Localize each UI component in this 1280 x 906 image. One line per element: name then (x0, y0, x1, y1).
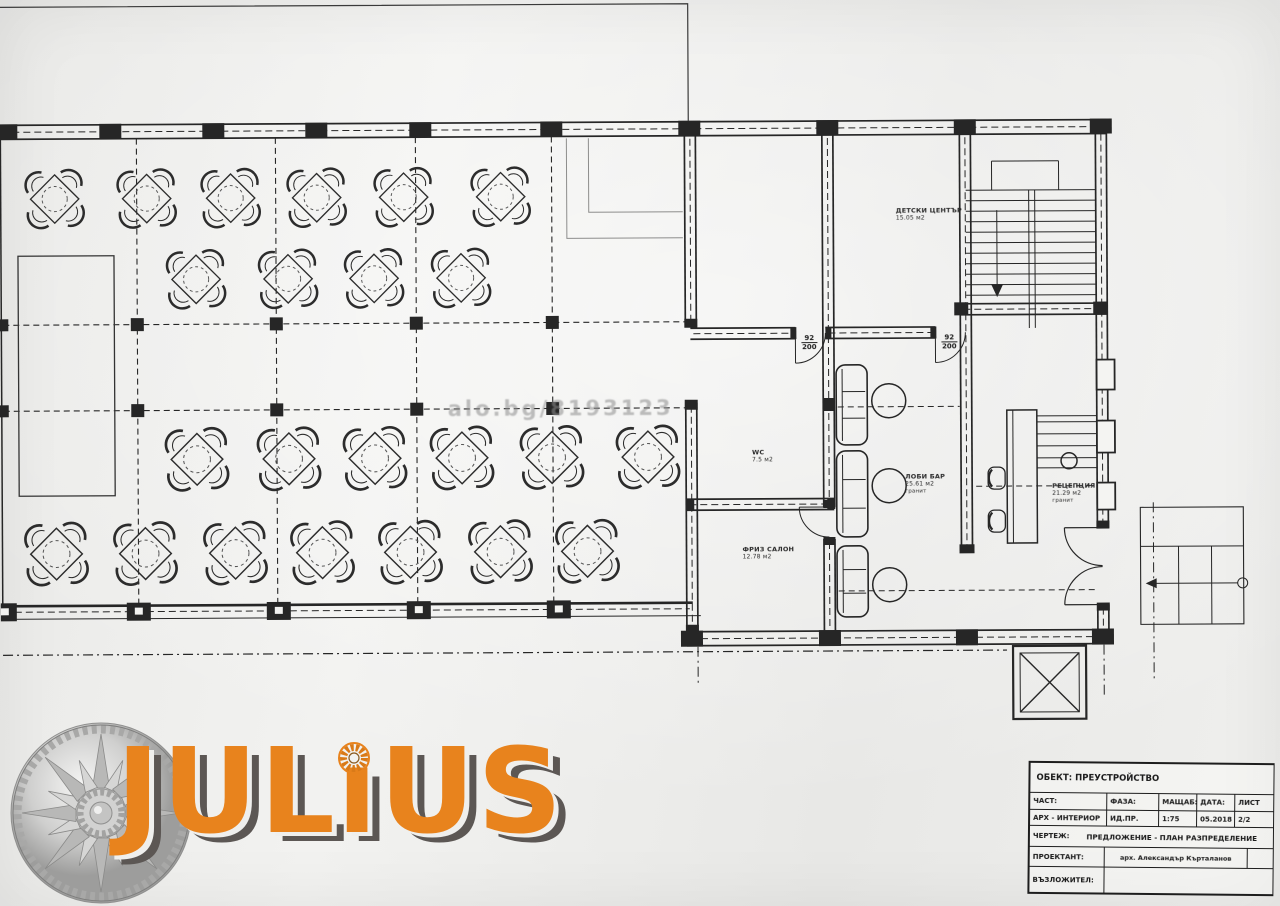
dining-table-group (556, 520, 618, 582)
julius-logo-text: JULı US (116, 732, 564, 850)
title-block: ОБЕКТ: ПРЕУСТРОЙСТВО ЧАСТ: ФАЗА: МАЩАБ: … (1027, 761, 1274, 896)
value-chast: АРХ - ИНТЕРИОР (1030, 810, 1107, 826)
room-label-kids-center: ДЕТСКИ ЦЕНТЪР 15.05 м2 (896, 206, 962, 223)
object-label: ОБЕКТ: ПРЕУСТРОЙСТВО (1036, 772, 1159, 783)
logo-letters: US (379, 732, 564, 850)
dining-table-group (432, 249, 490, 307)
room-area: 12.78 м2 (743, 554, 795, 562)
door-height: 200 (802, 343, 817, 351)
drawing-title: ПРЕДЛОЖЕНИЕ - ПЛАН РАЗПРЕДЕЛЕНИЕ (1086, 832, 1257, 843)
header-data: ДАТА: (1197, 794, 1235, 810)
header-faza: ФАЗА: (1107, 794, 1159, 810)
drawing-label: ЧЕРТЕЖ: (1030, 832, 1073, 840)
room-label-wc: WC 7.5 м2 (752, 448, 773, 464)
room-area: 25.61 м2 (905, 481, 945, 489)
dining-table-group (374, 168, 432, 226)
header-chast: ЧАСТ: (1030, 793, 1107, 810)
dining-table-group (204, 522, 266, 584)
logo-letter-i: ı (337, 732, 379, 850)
room-name: ЛОБИ БАР (905, 472, 945, 481)
scanned-floor-plan-sheet: ДЕТСКИ ЦЕНТЪР 15.05 м2 WC 7.5 м2 ФРИЗ СА… (0, 0, 1280, 906)
door-width: 92 (941, 333, 957, 342)
value-list: 2/2 (1235, 812, 1273, 827)
entrance-steps (1140, 507, 1248, 625)
titleblock-designer-row: ПРОЕКТАНТ: арх. Александър Кърталанов (1030, 846, 1273, 868)
lobby-bar-furniture (836, 365, 907, 617)
dining-table-group (291, 521, 353, 583)
dining-table-group (345, 249, 403, 307)
designer-name: арх. Александър Кърталанов (1105, 848, 1248, 868)
doors (795, 332, 1102, 607)
door-height: 200 (942, 342, 957, 350)
header-list: ЛИСТ (1235, 795, 1273, 811)
dining-table-group (25, 523, 87, 585)
room-floor-finish: гранит (1052, 498, 1095, 505)
value-mashtab: 1:75 (1159, 811, 1197, 826)
dining-table-group (259, 250, 317, 308)
value-data: 05.2018 (1197, 811, 1235, 826)
dining-table-group (344, 427, 406, 489)
dining-table-group (617, 426, 679, 488)
sun-dot-icon (334, 738, 374, 778)
value-faza: ИД.ПР. (1107, 811, 1159, 826)
dining-table-group (167, 250, 225, 308)
dining-table-group (26, 170, 84, 228)
titleblock-object-row: ОБЕКТ: ПРЕУСТРОЙСТВО (1030, 763, 1273, 794)
room-floor-finish: гранит (905, 489, 945, 496)
dining-table-group (431, 427, 493, 489)
dining-table-group (521, 426, 583, 488)
reception-desk (988, 410, 1038, 543)
door-width: 92 (801, 334, 817, 343)
client-label: ВЪЗЛОЖИТЕЛ: (1029, 867, 1104, 893)
julius-logo: JULı US (0, 710, 640, 906)
room-name: ДЕТСКИ ЦЕНТЪР (896, 206, 962, 215)
room-name: WC (752, 448, 773, 457)
room-area: 15.05 м2 (896, 215, 962, 223)
empty-cell (1248, 849, 1273, 868)
room-label-friz-salon: ФРИЗ САЛОН 12.78 м2 (742, 545, 794, 562)
room-label-reception: РЕЦЕПЦИЯ 21.29 м2 гранит (1052, 482, 1095, 506)
dining-tables (24, 167, 680, 585)
designer-label: ПРОЕКТАНТ: (1030, 847, 1105, 867)
header-mashtab: МАЩАБ: (1159, 794, 1197, 810)
elevator-shaft (1013, 646, 1086, 719)
dining-table-group (287, 169, 345, 227)
dining-table-group (258, 428, 320, 490)
dining-table-group (379, 521, 441, 583)
empty-cell (1104, 868, 1272, 895)
dining-table-group (166, 428, 228, 490)
room-area: 21.29 м2 (1052, 490, 1095, 498)
dining-table-group (118, 169, 176, 227)
room-name: РЕЦЕПЦИЯ (1052, 482, 1095, 491)
titleblock-client-row: ВЪЗЛОЖИТЕЛ: (1029, 866, 1272, 894)
dining-table-group (201, 169, 259, 227)
titleblock-drawing-row: ЧЕРТЕЖ: ПРЕДЛОЖЕНИЕ - ПЛАН РАЗПРЕДЕЛЕНИЕ (1030, 825, 1273, 848)
site-watermark: alo.bg/8193123 (448, 396, 674, 421)
logo-letters: JUL (116, 732, 337, 850)
door-size-label: 92 200 (801, 334, 817, 351)
dining-table-group (114, 522, 176, 584)
dining-table-group (469, 521, 531, 583)
door-size-label: 92 200 (941, 333, 957, 350)
room-area: 7.5 м2 (752, 457, 773, 465)
room-label-lobby-bar: ЛОБИ БАР 25.61 м2 гранит (905, 472, 945, 496)
room-name: ФРИЗ САЛОН (742, 545, 794, 554)
dining-table-group (471, 168, 529, 226)
